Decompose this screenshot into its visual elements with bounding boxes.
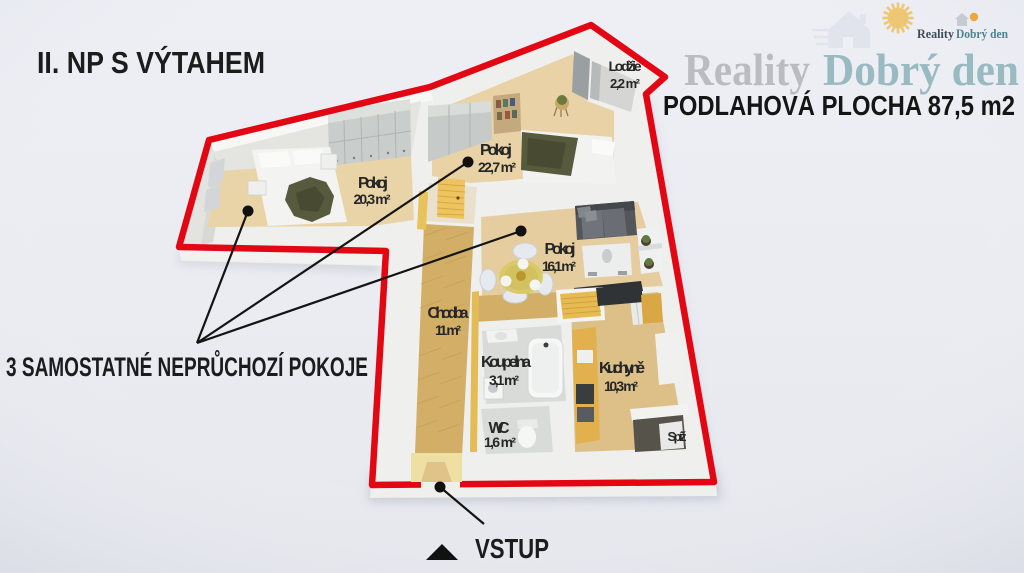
svg-text:VSTUP: VSTUP [475,533,549,564]
svg-text:16,1 m²: 16,1 m² [542,258,576,274]
svg-text:Spíž: Spíž [668,429,688,444]
svg-text:1,6 m²: 1,6 m² [484,434,516,450]
svg-text:3 SAMOSTATNÉ NEPRŮCHOZÍ POKOJE: 3 SAMOSTATNÉ NEPRŮCHOZÍ POKOJE [6,349,368,382]
svg-text:Kuchyně: Kuchyně [599,360,645,377]
svg-text:II. NP S VÝTAHEM: II. NP S VÝTAHEM [37,45,265,80]
svg-text:10,3 m²: 10,3 m² [604,378,638,394]
svg-text:2,2 m²: 2,2 m² [610,76,641,91]
svg-text:Lodžie: Lodžie [609,58,642,74]
svg-text:Pokoj: Pokoj [480,142,512,159]
svg-text:Dobrý den: Dobrý den [823,45,1019,95]
svg-text:Koupelna: Koupelna [481,354,531,371]
svg-text:Pokoj: Pokoj [545,241,576,258]
svg-text:Pokoj: Pokoj [358,175,388,192]
svg-text:Reality: Reality [684,45,810,95]
svg-text:3,1 m²: 3,1 m² [489,372,519,388]
svg-text:11 m²: 11 m² [435,322,461,338]
svg-text:20,3 m²: 20,3 m² [354,191,391,207]
svg-text:Chodba: Chodba [428,305,469,322]
svg-text:22,7 m²: 22,7 m² [478,159,516,175]
svg-text:PODLAHOVÁ PLOCHA 87,5 m2: PODLAHOVÁ PLOCHA 87,5 m2 [663,90,1015,121]
svg-text:Dobrý den: Dobrý den [956,26,1009,41]
svg-text:Reality: Reality [917,26,954,41]
